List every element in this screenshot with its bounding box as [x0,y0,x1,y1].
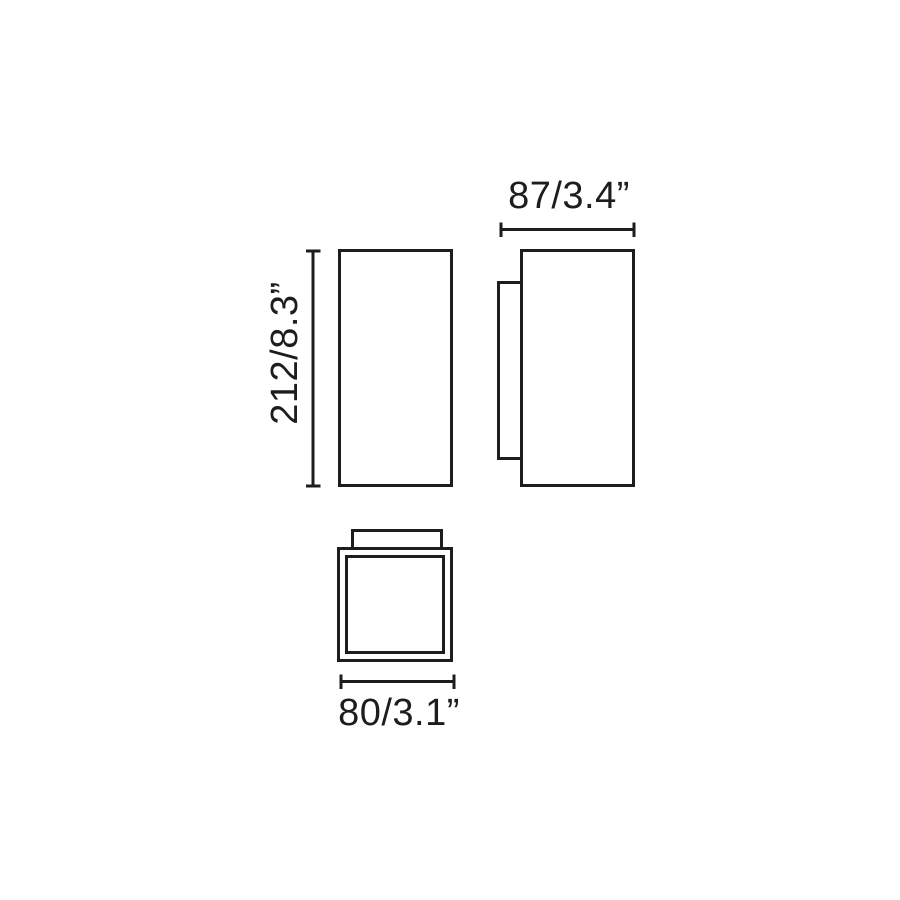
depth-dimension-label: 87/3.4” [508,175,630,217]
front-view-outline [340,251,452,486]
bottom-view-mount-tab [353,531,442,549]
side-view-wall-bracket [499,283,523,459]
width-dimension-line [341,675,454,690]
bottom-view [339,531,452,661]
side-view [499,251,634,486]
bottom-view-inner-outline [347,557,444,653]
drawing-svg: 212/8.3” 87/3.4” 80/3.1” [0,0,900,900]
depth-dimension-line [501,223,634,238]
dimension-drawing: 212/8.3” 87/3.4” 80/3.1” [0,0,900,900]
side-view-outline [522,251,634,486]
width-dimension-label: 80/3.1” [338,692,460,734]
height-dimension-line [306,251,321,486]
linework [306,223,634,690]
height-dimension-label: 212/8.3” [264,281,306,424]
